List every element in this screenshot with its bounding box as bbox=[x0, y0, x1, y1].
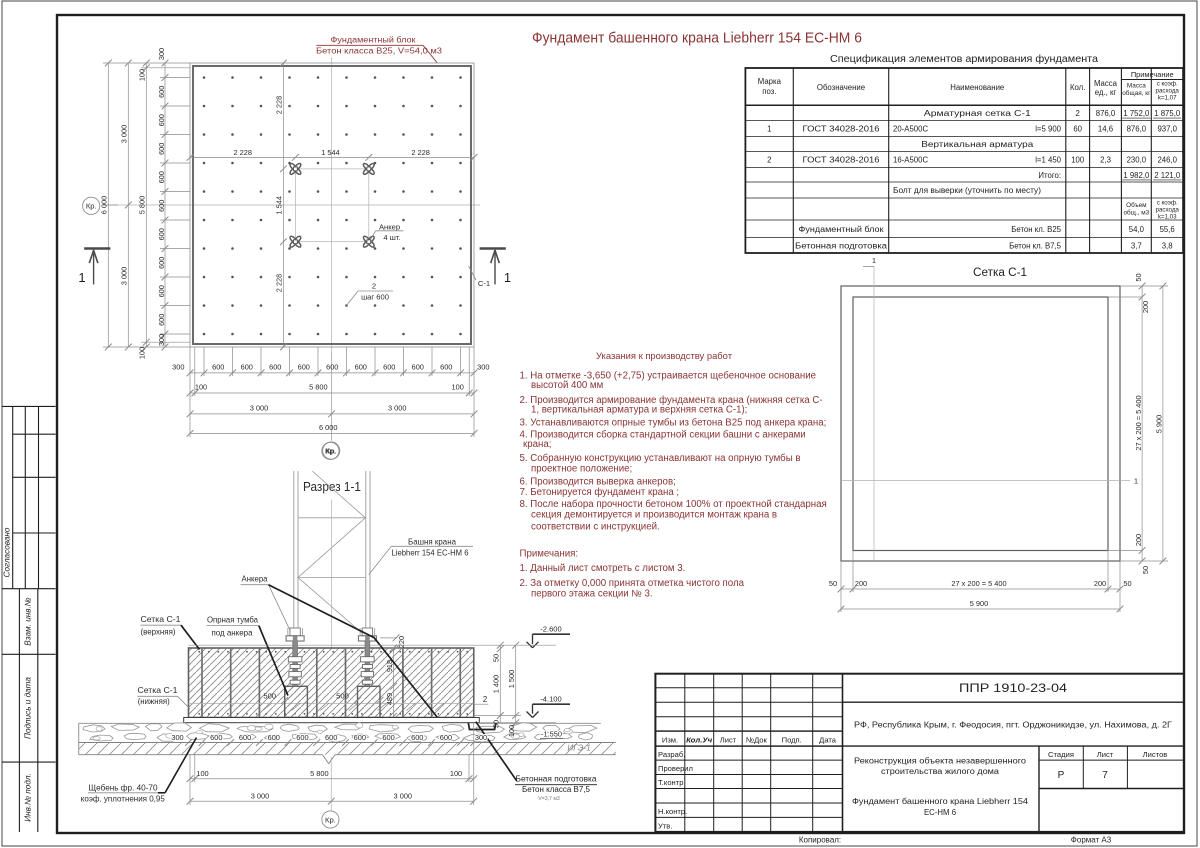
svg-text:Арматурная сетка С-1: Арматурная сетка С-1 bbox=[924, 109, 1031, 118]
svg-text:300: 300 bbox=[172, 363, 184, 372]
svg-text:600: 600 bbox=[325, 733, 337, 742]
svg-text:300: 300 bbox=[477, 363, 489, 372]
svg-text:Анкер: Анкер bbox=[379, 223, 400, 232]
svg-text:100: 100 bbox=[507, 725, 516, 737]
svg-text:Копировал:: Копировал: bbox=[799, 836, 841, 845]
svg-text:600: 600 bbox=[411, 733, 423, 742]
svg-text:Проверил: Проверил bbox=[658, 764, 693, 773]
svg-text:200: 200 bbox=[1134, 534, 1143, 546]
svg-text:300: 300 bbox=[157, 48, 166, 60]
svg-text:Дата: Дата bbox=[819, 736, 837, 745]
svg-text:Утв.: Утв. bbox=[658, 822, 672, 831]
svg-text:2: 2 bbox=[372, 282, 376, 291]
svg-text:Бетонная подготовка: Бетонная подготовка bbox=[516, 775, 598, 784]
svg-text:300: 300 bbox=[475, 733, 487, 742]
svg-text:k=1,07: k=1,07 bbox=[1158, 95, 1177, 102]
svg-text:600: 600 bbox=[298, 363, 310, 372]
svg-text:5 900: 5 900 bbox=[1155, 415, 1164, 434]
svg-text:2 228: 2 228 bbox=[275, 274, 284, 293]
svg-text:50: 50 bbox=[492, 654, 501, 662]
svg-text:-2.600: -2.600 bbox=[540, 625, 562, 634]
svg-text:Кр.: Кр. bbox=[325, 447, 336, 456]
svg-text:2 228: 2 228 bbox=[275, 96, 284, 115]
svg-text:600: 600 bbox=[326, 363, 338, 372]
svg-text:Анкера: Анкера bbox=[242, 574, 268, 584]
svg-text:600: 600 bbox=[157, 257, 166, 269]
svg-text:14,6: 14,6 bbox=[1098, 125, 1113, 134]
svg-text:7. Бетонируется фундамент кран: 7. Бетонируется фундамент крана ; bbox=[520, 487, 680, 498]
svg-text:4 шт.: 4 шт. bbox=[383, 233, 400, 242]
svg-text:Примечания:: Примечания: bbox=[520, 549, 579, 560]
svg-text:крана;: крана; bbox=[523, 439, 551, 450]
svg-text:2 228: 2 228 bbox=[233, 148, 252, 157]
svg-text:1 544: 1 544 bbox=[275, 196, 284, 215]
svg-text:3 000: 3 000 bbox=[394, 792, 413, 801]
svg-text:Кр.: Кр. bbox=[86, 202, 97, 211]
svg-text:3 000: 3 000 bbox=[250, 403, 269, 412]
svg-text:Реконструкция объекта незаверш: Реконструкция объекта незавершенного bbox=[854, 757, 1027, 766]
svg-text:коэф. уплотнения 0,95: коэф. уплотнения 0,95 bbox=[81, 794, 165, 804]
svg-text:Указания к производству работ: Указания к производству работ bbox=[596, 351, 733, 361]
svg-text:50: 50 bbox=[829, 579, 837, 588]
svg-text:3 000: 3 000 bbox=[120, 267, 129, 286]
svg-text:1: 1 bbox=[767, 125, 771, 134]
svg-text:246,0: 246,0 bbox=[1157, 156, 1177, 165]
svg-text:500: 500 bbox=[263, 691, 276, 700]
svg-text:Сетка С-1: Сетка С-1 bbox=[138, 685, 178, 695]
svg-text:Подпись и дата: Подпись и дата bbox=[24, 677, 33, 739]
svg-text:Вертикальная арматура: Вертикальная арматура bbox=[921, 140, 1034, 149]
svg-text:2. За отметку 0,000 принята от: 2. За отметку 0,000 принята отметка чист… bbox=[520, 578, 745, 589]
svg-text:общ., м3: общ., м3 bbox=[1123, 209, 1149, 217]
svg-text:230,0: 230,0 bbox=[1127, 156, 1147, 165]
svg-text:Опрная тумба: Опрная тумба bbox=[207, 615, 258, 625]
svg-text:Башня крана: Башня крана bbox=[408, 536, 456, 546]
svg-text:Марка: Марка bbox=[758, 77, 782, 86]
svg-text:Инв.№ подл.: Инв.№ подл. bbox=[24, 773, 33, 822]
svg-text:Бетон кл. В25: Бетон кл. В25 bbox=[1011, 225, 1061, 234]
svg-text:V=3,7 м3: V=3,7 м3 bbox=[538, 796, 560, 802]
svg-text:100: 100 bbox=[452, 383, 464, 392]
svg-text:соответствии с инструкцией.: соответствии с инструкцией. bbox=[531, 521, 660, 532]
svg-text:Болт для выверки (уточнить по: Болт для выверки (уточнить по месту) bbox=[893, 186, 1041, 195]
svg-text:3 000: 3 000 bbox=[388, 403, 407, 412]
svg-text:600: 600 bbox=[157, 314, 166, 326]
svg-text:Взам. инв.№: Взам. инв.№ bbox=[24, 597, 33, 645]
svg-text:Liebherr 154 ЕС-НМ 6: Liebherr 154 ЕС-НМ 6 bbox=[392, 548, 469, 558]
svg-text:ППР 1910-23-04: ППР 1910-23-04 bbox=[959, 683, 1068, 695]
svg-text:Формат А3: Формат А3 bbox=[1071, 836, 1112, 845]
svg-text:Кол.Уч: Кол.Уч bbox=[686, 736, 713, 745]
svg-text:489: 489 bbox=[385, 693, 394, 705]
svg-text:6. Производится выверка анкеро: 6. Производится выверка анкеров; bbox=[520, 476, 676, 487]
svg-text:-4.100: -4.100 bbox=[540, 695, 562, 704]
svg-text:600: 600 bbox=[212, 363, 224, 372]
svg-text:Бетон класса В25, V=54,0 м3: Бетон класса В25, V=54,0 м3 bbox=[316, 47, 442, 56]
svg-text:Лист: Лист bbox=[720, 736, 737, 745]
svg-text:50: 50 bbox=[1134, 273, 1143, 281]
svg-text:876,0: 876,0 bbox=[1127, 125, 1147, 134]
svg-text:27 x 200 = 5 400: 27 x 200 = 5 400 bbox=[951, 579, 1006, 588]
svg-text:(верхняя): (верхняя) bbox=[141, 626, 176, 636]
svg-text:высотой 400 мм: высотой 400 мм bbox=[531, 380, 603, 391]
svg-text:проектное положение;: проектное положение; bbox=[531, 464, 632, 475]
svg-text:100: 100 bbox=[138, 69, 147, 81]
svg-text:600: 600 bbox=[210, 733, 222, 742]
svg-text:1 544: 1 544 bbox=[321, 148, 340, 157]
svg-text:600: 600 bbox=[241, 363, 253, 372]
svg-text:Листов: Листов bbox=[1143, 750, 1168, 759]
svg-text:600: 600 bbox=[269, 363, 281, 372]
svg-text:Фундаментный блок: Фундаментный блок bbox=[331, 36, 417, 45]
svg-text:500: 500 bbox=[336, 691, 349, 700]
svg-text:1: 1 bbox=[872, 256, 876, 265]
svg-text:5 900: 5 900 bbox=[970, 599, 989, 608]
svg-text:50: 50 bbox=[492, 720, 501, 728]
svg-text:1 875,0: 1 875,0 bbox=[1154, 109, 1181, 118]
svg-text:(нижняя): (нижняя) bbox=[138, 696, 170, 706]
svg-text:l=1 450: l=1 450 bbox=[1035, 156, 1061, 165]
svg-text:k=1,03: k=1,03 bbox=[1158, 214, 1177, 221]
svg-text:Объем: Объем bbox=[1126, 201, 1146, 209]
svg-text:l=5 900: l=5 900 bbox=[1035, 125, 1061, 134]
svg-text:600: 600 bbox=[268, 733, 280, 742]
svg-text:1: 1 bbox=[78, 270, 85, 285]
svg-text:20-А500С: 20-А500С bbox=[893, 125, 928, 134]
svg-text:Фундамент башенного крана Lieb: Фундамент башенного крана Liebherr 154 Е… bbox=[532, 31, 862, 47]
svg-text:ед., кг: ед., кг bbox=[1095, 88, 1117, 97]
svg-text:Подп.: Подп. bbox=[782, 736, 802, 745]
svg-text:100: 100 bbox=[138, 347, 147, 359]
svg-text:Масса: Масса bbox=[1127, 83, 1146, 90]
svg-text:600: 600 bbox=[157, 228, 166, 240]
svg-text:5. Собранную конструкцию устан: 5. Собранную конструкцию устанавливают н… bbox=[520, 453, 801, 464]
svg-text:2,3: 2,3 bbox=[1100, 156, 1111, 165]
svg-text:Кр.: Кр. bbox=[325, 815, 336, 824]
svg-text:600: 600 bbox=[157, 143, 166, 155]
svg-text:300: 300 bbox=[171, 733, 183, 742]
svg-text:-1.550: -1.550 bbox=[541, 730, 562, 739]
svg-text:6 000: 6 000 bbox=[319, 423, 338, 432]
svg-text:№Док: №Док bbox=[746, 736, 768, 745]
svg-text:937,0: 937,0 bbox=[1157, 125, 1177, 134]
svg-text:3 000: 3 000 bbox=[251, 792, 270, 801]
svg-text:расхода: расхода bbox=[1156, 207, 1180, 214]
svg-text:С-1: С-1 bbox=[478, 279, 490, 288]
svg-text:1, вертикальная арматура и вер: 1, вертикальная арматура и верхняя сетка… bbox=[531, 405, 747, 416]
svg-text:5 800: 5 800 bbox=[310, 769, 329, 778]
svg-text:Стадия: Стадия bbox=[1048, 750, 1074, 759]
svg-text:первого этажа секции № 3.: первого этажа секции № 3. bbox=[531, 589, 653, 600]
svg-text:Сетка С-1: Сетка С-1 bbox=[973, 267, 1027, 279]
svg-text:Фундаментный блок: Фундаментный блок bbox=[799, 225, 885, 234]
svg-text:строительства жилого дома: строительства жилого дома bbox=[881, 767, 1000, 776]
svg-text:600: 600 bbox=[440, 733, 452, 742]
svg-text:2: 2 bbox=[483, 695, 487, 704]
svg-text:Р: Р bbox=[1058, 770, 1065, 781]
svg-text:Кол.: Кол. bbox=[1070, 83, 1085, 92]
svg-text:2 121,0: 2 121,0 bbox=[1154, 171, 1181, 180]
svg-text:5 800: 5 800 bbox=[138, 196, 147, 215]
svg-text:1 752,0: 1 752,0 bbox=[1123, 109, 1150, 118]
svg-text:5 800: 5 800 bbox=[309, 383, 328, 392]
svg-text:Разраб.: Разраб. bbox=[658, 750, 685, 759]
svg-text:Н.контр.: Н.контр. bbox=[658, 807, 687, 816]
svg-text:600: 600 bbox=[157, 114, 166, 126]
svg-text:с коэф.: с коэф. bbox=[1157, 200, 1178, 207]
svg-text:220: 220 bbox=[397, 636, 406, 648]
svg-text:шаг 600: шаг 600 bbox=[361, 293, 389, 302]
svg-text:2 228: 2 228 bbox=[411, 148, 430, 157]
svg-text:6 000: 6 000 bbox=[100, 196, 109, 215]
svg-text:3. Устанавливаются опрные тумб: 3. Устанавливаются опрные тумбы из бетон… bbox=[520, 418, 827, 429]
svg-text:ГОСТ 34028-2016: ГОСТ 34028-2016 bbox=[803, 156, 880, 165]
svg-text:Лист: Лист bbox=[1097, 750, 1114, 759]
svg-text:Бетон кл. В7,5: Бетон кл. В7,5 bbox=[1009, 241, 1062, 250]
svg-text:3,8: 3,8 bbox=[1162, 241, 1173, 250]
svg-text:Сетка С-1: Сетка С-1 bbox=[141, 614, 181, 624]
svg-text:60: 60 bbox=[1073, 125, 1082, 134]
svg-text:Итого:: Итого: bbox=[1038, 171, 1061, 180]
svg-text:600: 600 bbox=[412, 363, 424, 372]
svg-text:Щебень фр. 40-70: Щебень фр. 40-70 bbox=[89, 782, 158, 792]
svg-text:Бетонная подготовка: Бетонная подготовка bbox=[795, 241, 888, 250]
svg-text:16-А500С: 16-А500С bbox=[893, 156, 928, 165]
svg-text:Примечание: Примечание bbox=[1131, 70, 1174, 79]
svg-text:600: 600 bbox=[383, 363, 395, 372]
svg-text:Бетон класса В7,5: Бетон класса В7,5 bbox=[522, 785, 591, 794]
svg-text:Обозначение: Обозначение bbox=[817, 83, 865, 92]
svg-text:2: 2 bbox=[1076, 109, 1080, 118]
svg-text:2: 2 bbox=[767, 156, 771, 165]
svg-text:Фундамент башенного крана Lieb: Фундамент башенного крана Liebherr 154 bbox=[852, 797, 1029, 806]
svg-text:Масса: Масса bbox=[1094, 79, 1118, 88]
svg-text:600: 600 bbox=[157, 200, 166, 212]
svg-text:100: 100 bbox=[196, 769, 208, 778]
svg-text:600: 600 bbox=[440, 363, 452, 372]
svg-text:8. После набора прочности бето: 8. После набора прочности бетоном 100% о… bbox=[520, 499, 827, 510]
svg-text:Т.контр: Т.контр bbox=[658, 778, 683, 787]
svg-text:600: 600 bbox=[354, 733, 366, 742]
svg-text:1: 1 bbox=[504, 270, 511, 285]
svg-text:27 x 200 = 5 400: 27 x 200 = 5 400 bbox=[1134, 395, 1143, 450]
svg-text:1 500: 1 500 bbox=[507, 670, 516, 689]
svg-text:Спецификация элементов армиров: Спецификация элементов армирования фунда… bbox=[830, 53, 1098, 65]
svg-text:50: 50 bbox=[1123, 579, 1131, 588]
svg-text:РФ, Республика Крым, г. Феодос: РФ, Республика Крым, г. Феодосия, пгт. О… bbox=[854, 721, 1173, 730]
svg-text:1. Данный лист смотреть с лист: 1. Данный лист смотреть с листом 3. bbox=[520, 563, 686, 574]
svg-text:600: 600 bbox=[239, 733, 251, 742]
svg-text:100: 100 bbox=[195, 383, 207, 392]
svg-text:7: 7 bbox=[1102, 770, 1108, 781]
svg-text:расхода: расхода bbox=[1156, 88, 1180, 95]
svg-text:поз.: поз. bbox=[762, 87, 776, 96]
svg-text:600: 600 bbox=[157, 86, 166, 98]
svg-text:3 000: 3 000 bbox=[120, 125, 129, 143]
svg-text:общая, кг: общая, кг bbox=[1122, 89, 1151, 97]
svg-text:600: 600 bbox=[355, 363, 367, 372]
svg-text:200: 200 bbox=[1094, 579, 1106, 588]
svg-text:600: 600 bbox=[382, 733, 394, 742]
svg-text:600: 600 bbox=[157, 171, 166, 183]
svg-text:600: 600 bbox=[157, 285, 166, 297]
svg-text:Изм.: Изм. bbox=[662, 736, 678, 745]
svg-text:ЕС-НМ 6: ЕС-НМ 6 bbox=[924, 808, 956, 817]
svg-text:3,7: 3,7 bbox=[1131, 241, 1142, 250]
svg-text:876,0: 876,0 bbox=[1096, 109, 1116, 118]
svg-text:55,6: 55,6 bbox=[1160, 225, 1175, 234]
svg-text:1 982,0: 1 982,0 bbox=[1123, 171, 1150, 180]
svg-text:1: 1 bbox=[1134, 477, 1138, 486]
svg-text:100: 100 bbox=[1071, 156, 1085, 165]
svg-text:4. Производится сборка стандар: 4. Производится сборка стандартной секци… bbox=[520, 429, 806, 440]
svg-text:ГОСТ 34028-2016: ГОСТ 34028-2016 bbox=[803, 125, 880, 134]
svg-text:200: 200 bbox=[1141, 301, 1150, 313]
svg-text:Согласовано: Согласовано bbox=[3, 527, 12, 577]
svg-text:600: 600 bbox=[296, 733, 308, 742]
svg-text:под анкера: под анкера bbox=[212, 627, 253, 637]
svg-text:100: 100 bbox=[450, 769, 462, 778]
svg-text:300: 300 bbox=[157, 334, 166, 346]
svg-text:с коэф.: с коэф. bbox=[1157, 81, 1178, 88]
svg-text:Разрез 1-1: Разрез 1-1 bbox=[303, 480, 361, 494]
svg-text:ИГЭ-1: ИГЭ-1 bbox=[567, 744, 590, 753]
svg-text:Наименование: Наименование bbox=[950, 83, 1004, 92]
svg-text:200: 200 bbox=[855, 579, 867, 588]
svg-text:секция демонтируется и произво: секция демонтируется и производится монт… bbox=[531, 510, 777, 521]
svg-text:1 400: 1 400 bbox=[492, 675, 501, 694]
svg-text:54,0: 54,0 bbox=[1129, 225, 1145, 234]
svg-text:50: 50 bbox=[1141, 566, 1150, 574]
